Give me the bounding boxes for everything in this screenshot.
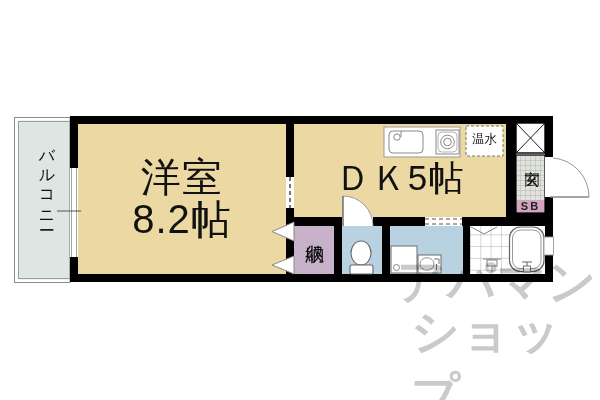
meter-box-icon (516, 123, 545, 153)
storage-label: 収納 (303, 229, 325, 274)
vanity-icon (418, 255, 441, 273)
washing-machine-icon (391, 246, 417, 273)
wall-left-upper (70, 116, 78, 168)
wall-right-lower (545, 255, 553, 282)
floor-plan: バルコニー 洋室 8.2帖 ＤＫ5帖 収納 玄関 SB 温水 アパマン ショップ (0, 0, 600, 400)
wall-bottom (70, 274, 553, 282)
wall-left-lower (70, 257, 78, 282)
bathtub-icon (510, 227, 545, 272)
balcony-label: バルコニー (31, 137, 55, 283)
shoe-box-label: SB (516, 201, 545, 213)
washroom-opening (425, 217, 462, 226)
entrance-door-arc (553, 158, 589, 197)
kitchen-counter (384, 127, 460, 157)
living-room-size: 8.2帖 (78, 198, 286, 240)
wall-toilet-washroom (382, 226, 390, 274)
wall-storage-toilet (334, 226, 342, 274)
entrance-door (545, 157, 589, 197)
wall-right-mid (545, 197, 553, 237)
entrance-opening (545, 157, 553, 197)
wall-living-dk-upper (286, 124, 294, 177)
toilet-icon (350, 241, 373, 274)
hot-water-label: 温水 (466, 133, 503, 146)
wall-dk-entrance (506, 124, 516, 217)
wall-right-upper (545, 116, 553, 157)
sliding-door-living-dk (286, 177, 294, 208)
wall-top (70, 116, 553, 124)
stove-icon (436, 130, 459, 154)
wall-dk-bottom-a (294, 217, 342, 226)
bathroom-window (544, 237, 554, 255)
living-room-name: 洋室 (78, 156, 286, 198)
sink-icon (389, 131, 423, 153)
bathroom-tile-grid (470, 226, 511, 274)
wall-washroom-bath (463, 226, 470, 274)
wall-dk-bottom-b (373, 217, 425, 226)
washroom-opening-gap (425, 217, 462, 226)
dk-label: ＤＫ5帖 (294, 160, 506, 197)
entrance-label: 玄関 (521, 159, 540, 201)
